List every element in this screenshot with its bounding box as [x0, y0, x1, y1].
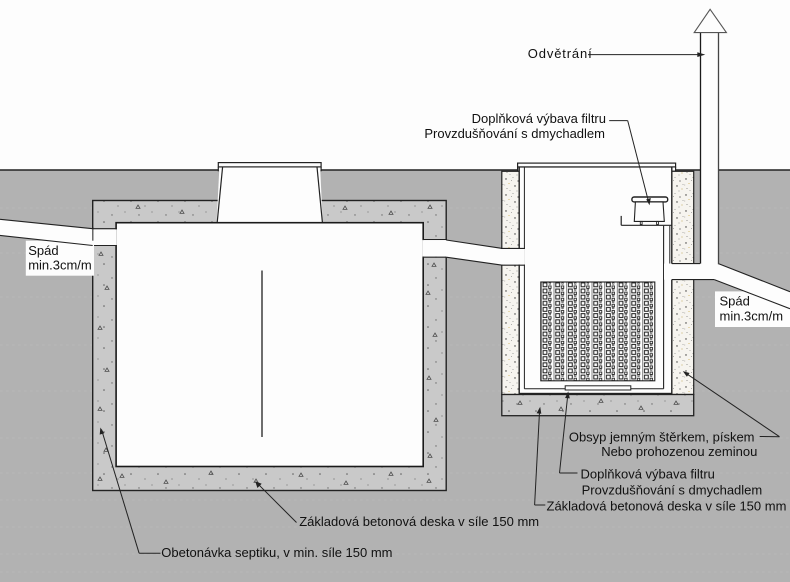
svg-text:Nebo prohozenou zeminou: Nebo prohozenou zeminou — [601, 444, 757, 459]
svg-text:Doplňková výbava filtru: Doplňková výbava filtru — [472, 111, 606, 126]
svg-text:Spád: Spád — [720, 294, 750, 309]
svg-text:Obetonávka septiku, v min. síl: Obetonávka septiku, v min. síle 150 mm — [161, 545, 392, 560]
svg-text:Doplňková výbava filtru: Doplňková výbava filtru — [581, 466, 715, 481]
svg-text:Obsyp jemným štěrkem, pískem: Obsyp jemným štěrkem, pískem — [569, 429, 755, 444]
svg-text:Základová betonová deska v síl: Základová betonová deska v síle 150 mm — [299, 514, 539, 529]
svg-text:Spád: Spád — [28, 243, 58, 258]
svg-text:Odvětrání: Odvětrání — [528, 46, 593, 61]
svg-text:min.3cm/m: min.3cm/m — [28, 257, 92, 272]
svg-text:min.3cm/m: min.3cm/m — [720, 309, 784, 324]
svg-text:Základová betonová deska v síl: Základová betonová deska v síle 150 mm — [547, 498, 787, 513]
svg-text:Provzdušňování s dmychadlem: Provzdušňování s dmychadlem — [582, 482, 763, 497]
svg-text:Provzdušňování s dmychadlem: Provzdušňování s dmychadlem — [424, 126, 605, 141]
